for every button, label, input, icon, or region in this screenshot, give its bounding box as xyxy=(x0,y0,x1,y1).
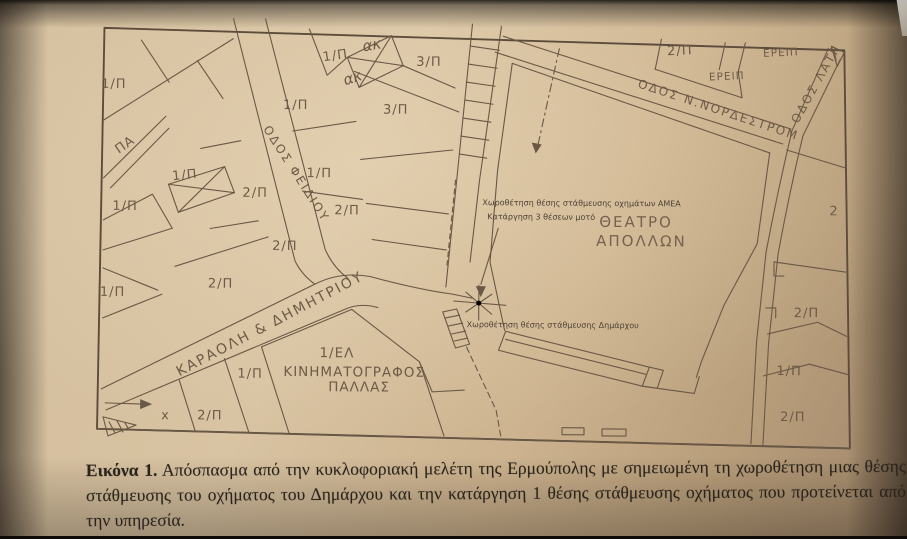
plot-label: ΕΡΕΙΠ xyxy=(709,70,745,84)
handwritten-mark: ακ xyxy=(361,34,383,55)
annotation-amea-line2: Κατάργηση 3 θέσεων μοτό xyxy=(487,211,595,222)
cinema-name-line2: ΠΑΛΛΑΣ xyxy=(328,379,390,395)
plot-label: 2/Π xyxy=(208,277,234,292)
plot-label: 2/Π xyxy=(780,410,806,425)
annotation-mayor: Χωροθέτηση θέσης στάθμευσης Δημάρχου xyxy=(467,319,640,330)
plot-labels: 1/Π ακ ακ 3/Π 3/Π 1/Π 1/Π ΠΑ 1/Π 1/Π 2/Π… xyxy=(99,33,840,428)
street-label-karaoli: ΚΑΡΑΟΛΗ & ΔΗΜΗΤΡΙΟΥ xyxy=(174,269,367,380)
plot-label: 2/Π xyxy=(197,408,223,423)
parking-markers xyxy=(443,228,507,348)
plot-label: 2/Π xyxy=(242,186,268,201)
plot-label: x xyxy=(161,408,170,423)
plot-label: 2/Π xyxy=(272,239,298,254)
plot-label: ΕΡΕΙΠ xyxy=(763,46,799,60)
plot-label: 1/Π xyxy=(307,166,333,181)
plot-label: 2/Π xyxy=(334,203,360,218)
plot-label: 1/Π xyxy=(283,98,309,113)
plot-label: 1/Π xyxy=(171,167,198,184)
figure-caption-label: Εικόνα 1. xyxy=(86,460,158,480)
parcel-lines xyxy=(102,28,849,441)
theater-name-line1: ΘΕΑΤΡΟ xyxy=(599,213,673,231)
plot-label: 1/Π xyxy=(237,367,263,382)
plot-label: 3/Π xyxy=(416,55,442,70)
plot-label: 1/Π xyxy=(112,199,138,214)
plot-label: ΠΑ xyxy=(112,133,138,157)
theater-name-line2: ΑΠΟΛΛΩΝ xyxy=(596,232,687,251)
street-label-nordestrom: ΟΔΟΣ Ν.ΝΟΡΔΕΣΤΡΟΜ xyxy=(636,77,801,143)
plot-label: 1/Π xyxy=(101,77,127,92)
map-frame xyxy=(97,28,853,449)
cinema-name-line1: ΚΙΝΗΜΑΤΟΓΡΑΦΟΣ xyxy=(283,364,425,381)
annotation-amea-line1: Χωροθέτηση θέσης στάθμευσης οχημάτων ΑΜΕ… xyxy=(482,197,681,208)
plot-label: 2/Π xyxy=(794,306,820,321)
plot-label: 3/Π xyxy=(383,103,409,118)
figure-caption-text: Απόσπασμα από την κυκλοφοριακή μελέτη τη… xyxy=(86,456,906,530)
plot-label: 1/Π xyxy=(322,47,349,65)
cinema-code: 1/ΕΛ xyxy=(319,345,354,361)
plot-label: 1/Π xyxy=(100,285,126,300)
figure-caption: Εικόνα 1. Απόσπασμα από την κυκλοφοριακή… xyxy=(86,454,906,533)
plot-label: 2 xyxy=(829,204,838,219)
plot-label: 2/Π xyxy=(667,43,693,59)
plot-label: 1/Π xyxy=(776,364,802,379)
